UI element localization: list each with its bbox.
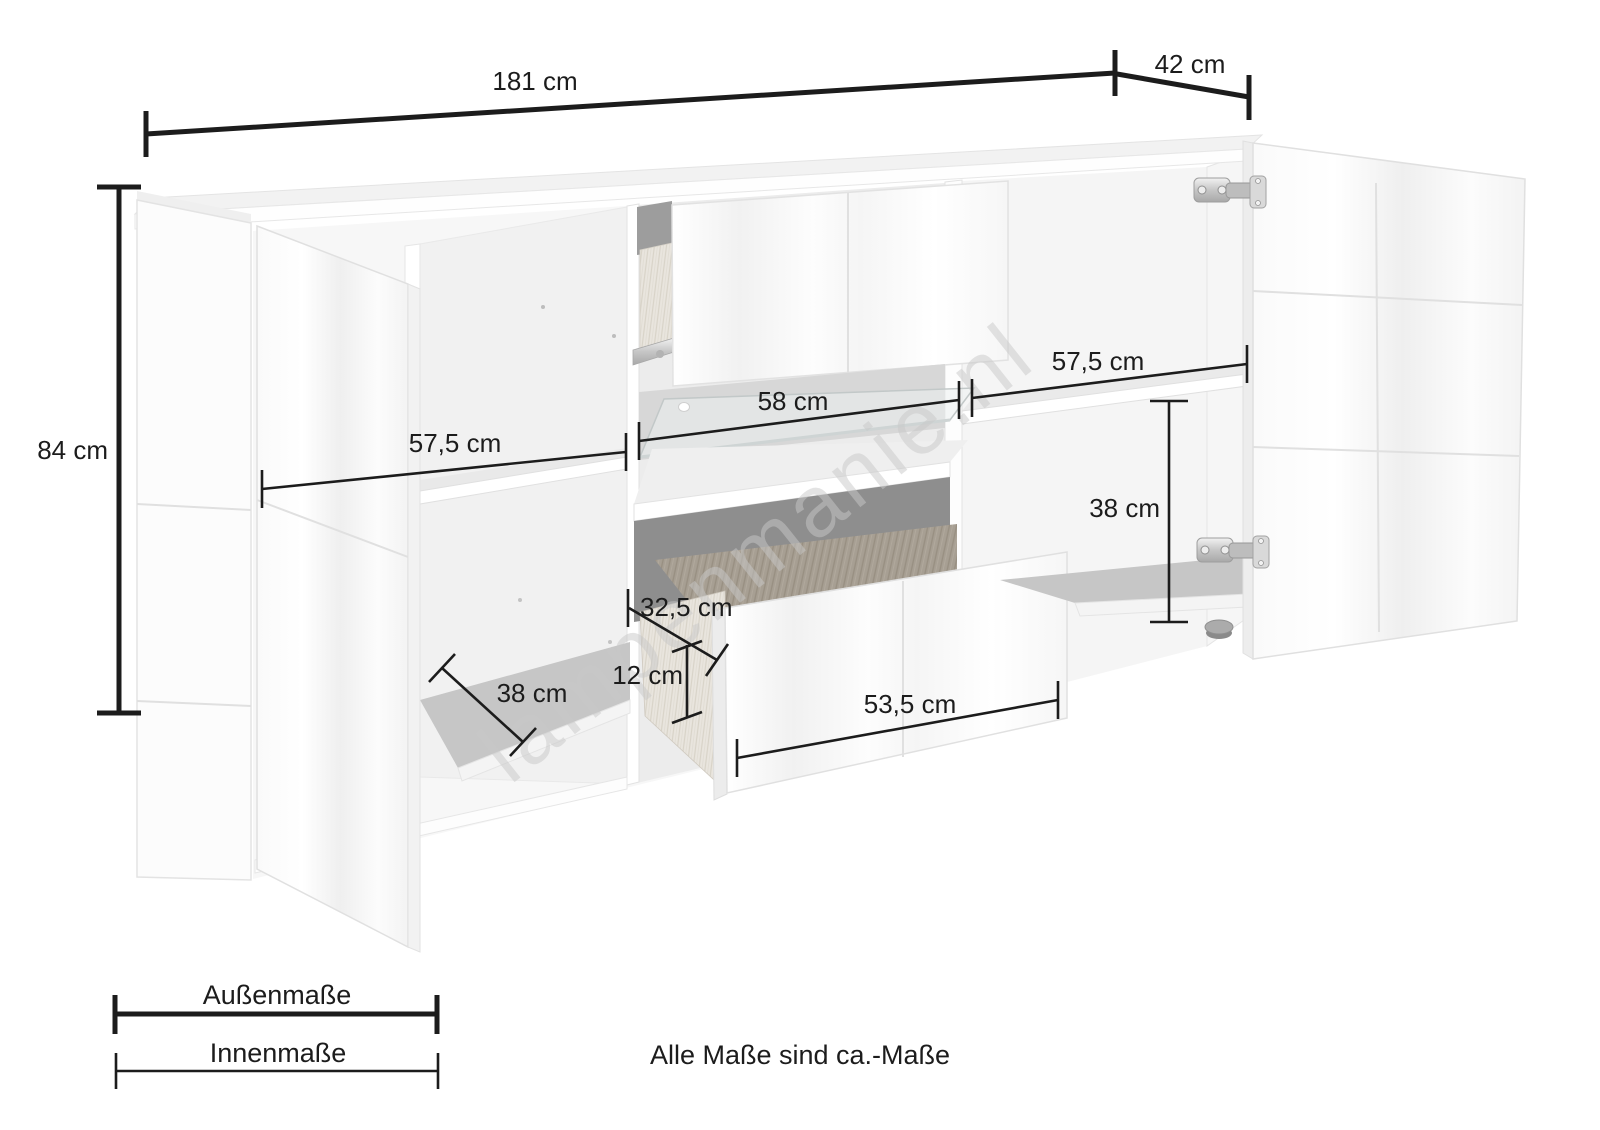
dimension-depth-outer: 42 cm xyxy=(1117,49,1249,120)
label-drawer-width: 53,5 cm xyxy=(864,689,957,719)
shelf-pin-hole xyxy=(541,305,545,309)
product-dimension-diagram: lampenmanie.nl 181 cm 42 cm 84 cm xyxy=(0,0,1600,1130)
drawer-rail-wheel xyxy=(656,350,664,358)
label-width-outer: 181 cm xyxy=(492,66,577,96)
led-spot xyxy=(679,403,690,412)
label-left-inner-depth: 38 cm xyxy=(497,678,568,708)
label-height-outer: 84 cm xyxy=(37,435,108,465)
right-door-open xyxy=(1194,141,1525,659)
legend-outer-label: Außenmaße xyxy=(203,980,352,1010)
dimension-height-outer: 84 cm xyxy=(37,187,141,713)
label-drawer-height: 12 cm xyxy=(612,660,683,690)
label-depth-outer: 42 cm xyxy=(1155,49,1226,79)
legend-inner-label: Innenmaße xyxy=(210,1038,347,1068)
label-right-inner-width: 57,5 cm xyxy=(1052,346,1145,376)
legend: Außenmaße Innenmaße Alle Maße sind ca.-M… xyxy=(115,980,950,1089)
label-right-inner-height: 38 cm xyxy=(1089,493,1160,523)
dimension-width-outer: 181 cm xyxy=(146,50,1115,157)
right-door-edge xyxy=(1243,141,1253,659)
shelf-pin-hole xyxy=(518,598,522,602)
label-middle-inner-width: 58 cm xyxy=(758,386,829,416)
shelf-pin-hole xyxy=(612,334,616,338)
legend-outer-dimensions: Außenmaße xyxy=(115,980,437,1034)
left-doors-open xyxy=(137,191,420,952)
sideboard-diagram-canvas: lampenmanie.nl 181 cm 42 cm 84 cm xyxy=(0,0,1600,1130)
left-door-inner xyxy=(257,226,408,947)
legend-inner-dimensions: Innenmaße xyxy=(116,1038,438,1089)
label-drawer-depth: 32,5 cm xyxy=(640,592,733,622)
label-left-inner-width: 57,5 cm xyxy=(409,428,502,458)
right-door-face xyxy=(1253,143,1525,659)
left-door-outer xyxy=(137,200,251,880)
approx-note: Alle Maße sind ca.-Maße xyxy=(650,1040,950,1070)
cabinet-foot xyxy=(1205,620,1233,634)
left-door-inner-edge xyxy=(408,284,420,952)
